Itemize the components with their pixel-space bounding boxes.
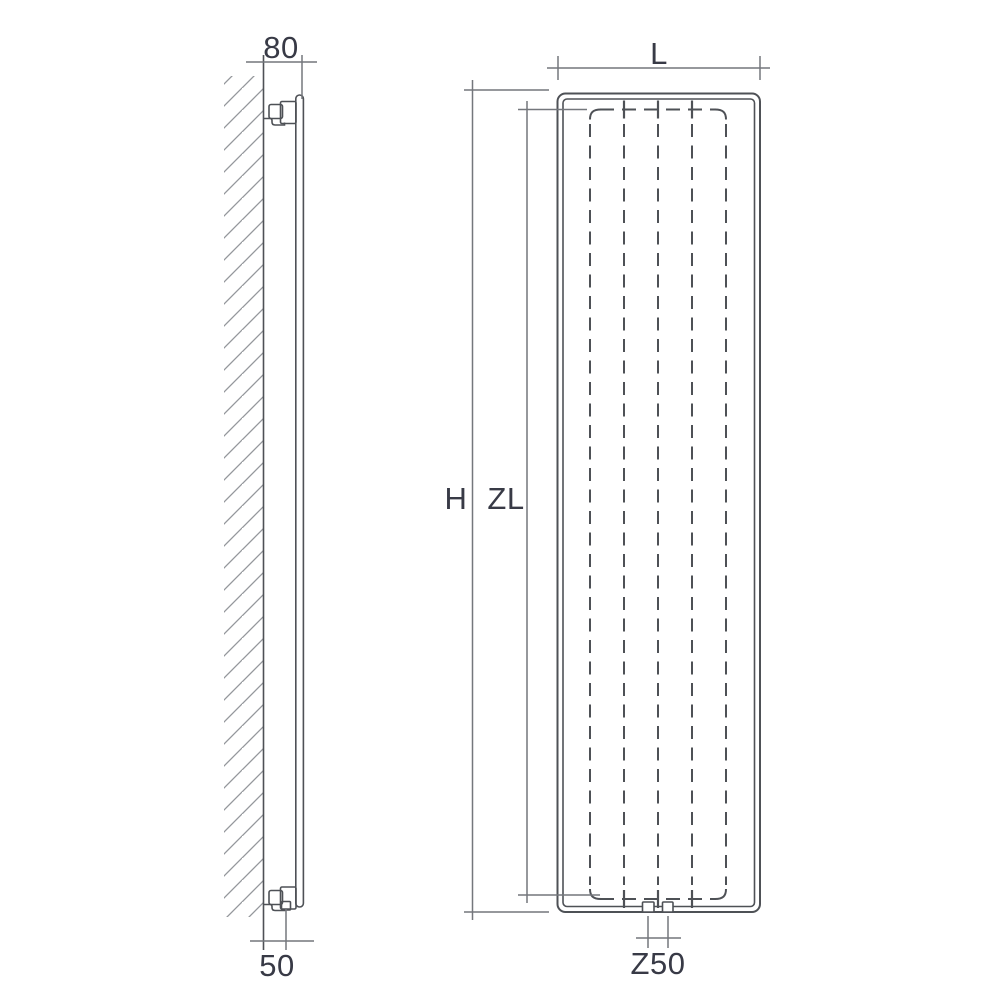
dim-50-label: 50: [259, 948, 294, 983]
channel-corner-top-left: [590, 110, 601, 120]
channel-corner-bottom-left: [590, 889, 601, 899]
channel-corner-bottom-right: [715, 889, 726, 899]
connection-port-left: [643, 902, 655, 912]
dim-80-label: 80: [263, 30, 298, 65]
radiator-channels: [590, 101, 726, 909]
radiator-dimension-drawing: 80 50: [0, 0, 1000, 1000]
side-view: 80 50: [224, 30, 317, 983]
front-view: L H ZL Z50: [445, 36, 770, 981]
connection-port-right: [663, 902, 674, 912]
dim-L-label: L: [650, 36, 668, 71]
dim-Z50-label: Z50: [631, 946, 686, 981]
dim-ZL-label: ZL: [487, 481, 524, 516]
dimension-wall-clearance-bottom: 50: [250, 908, 314, 983]
bottom-bracket: [264, 887, 297, 911]
dimension-width: L: [547, 36, 770, 80]
channel-corner-top-right: [715, 110, 726, 120]
radiator-panel-side: [296, 95, 304, 907]
wall-hatching: [224, 76, 264, 917]
dimension-inner-height: ZL: [487, 101, 600, 903]
dim-H-label: H: [445, 481, 468, 516]
dimension-connection-spacing: Z50: [631, 916, 686, 981]
top-bracket: [264, 102, 297, 126]
